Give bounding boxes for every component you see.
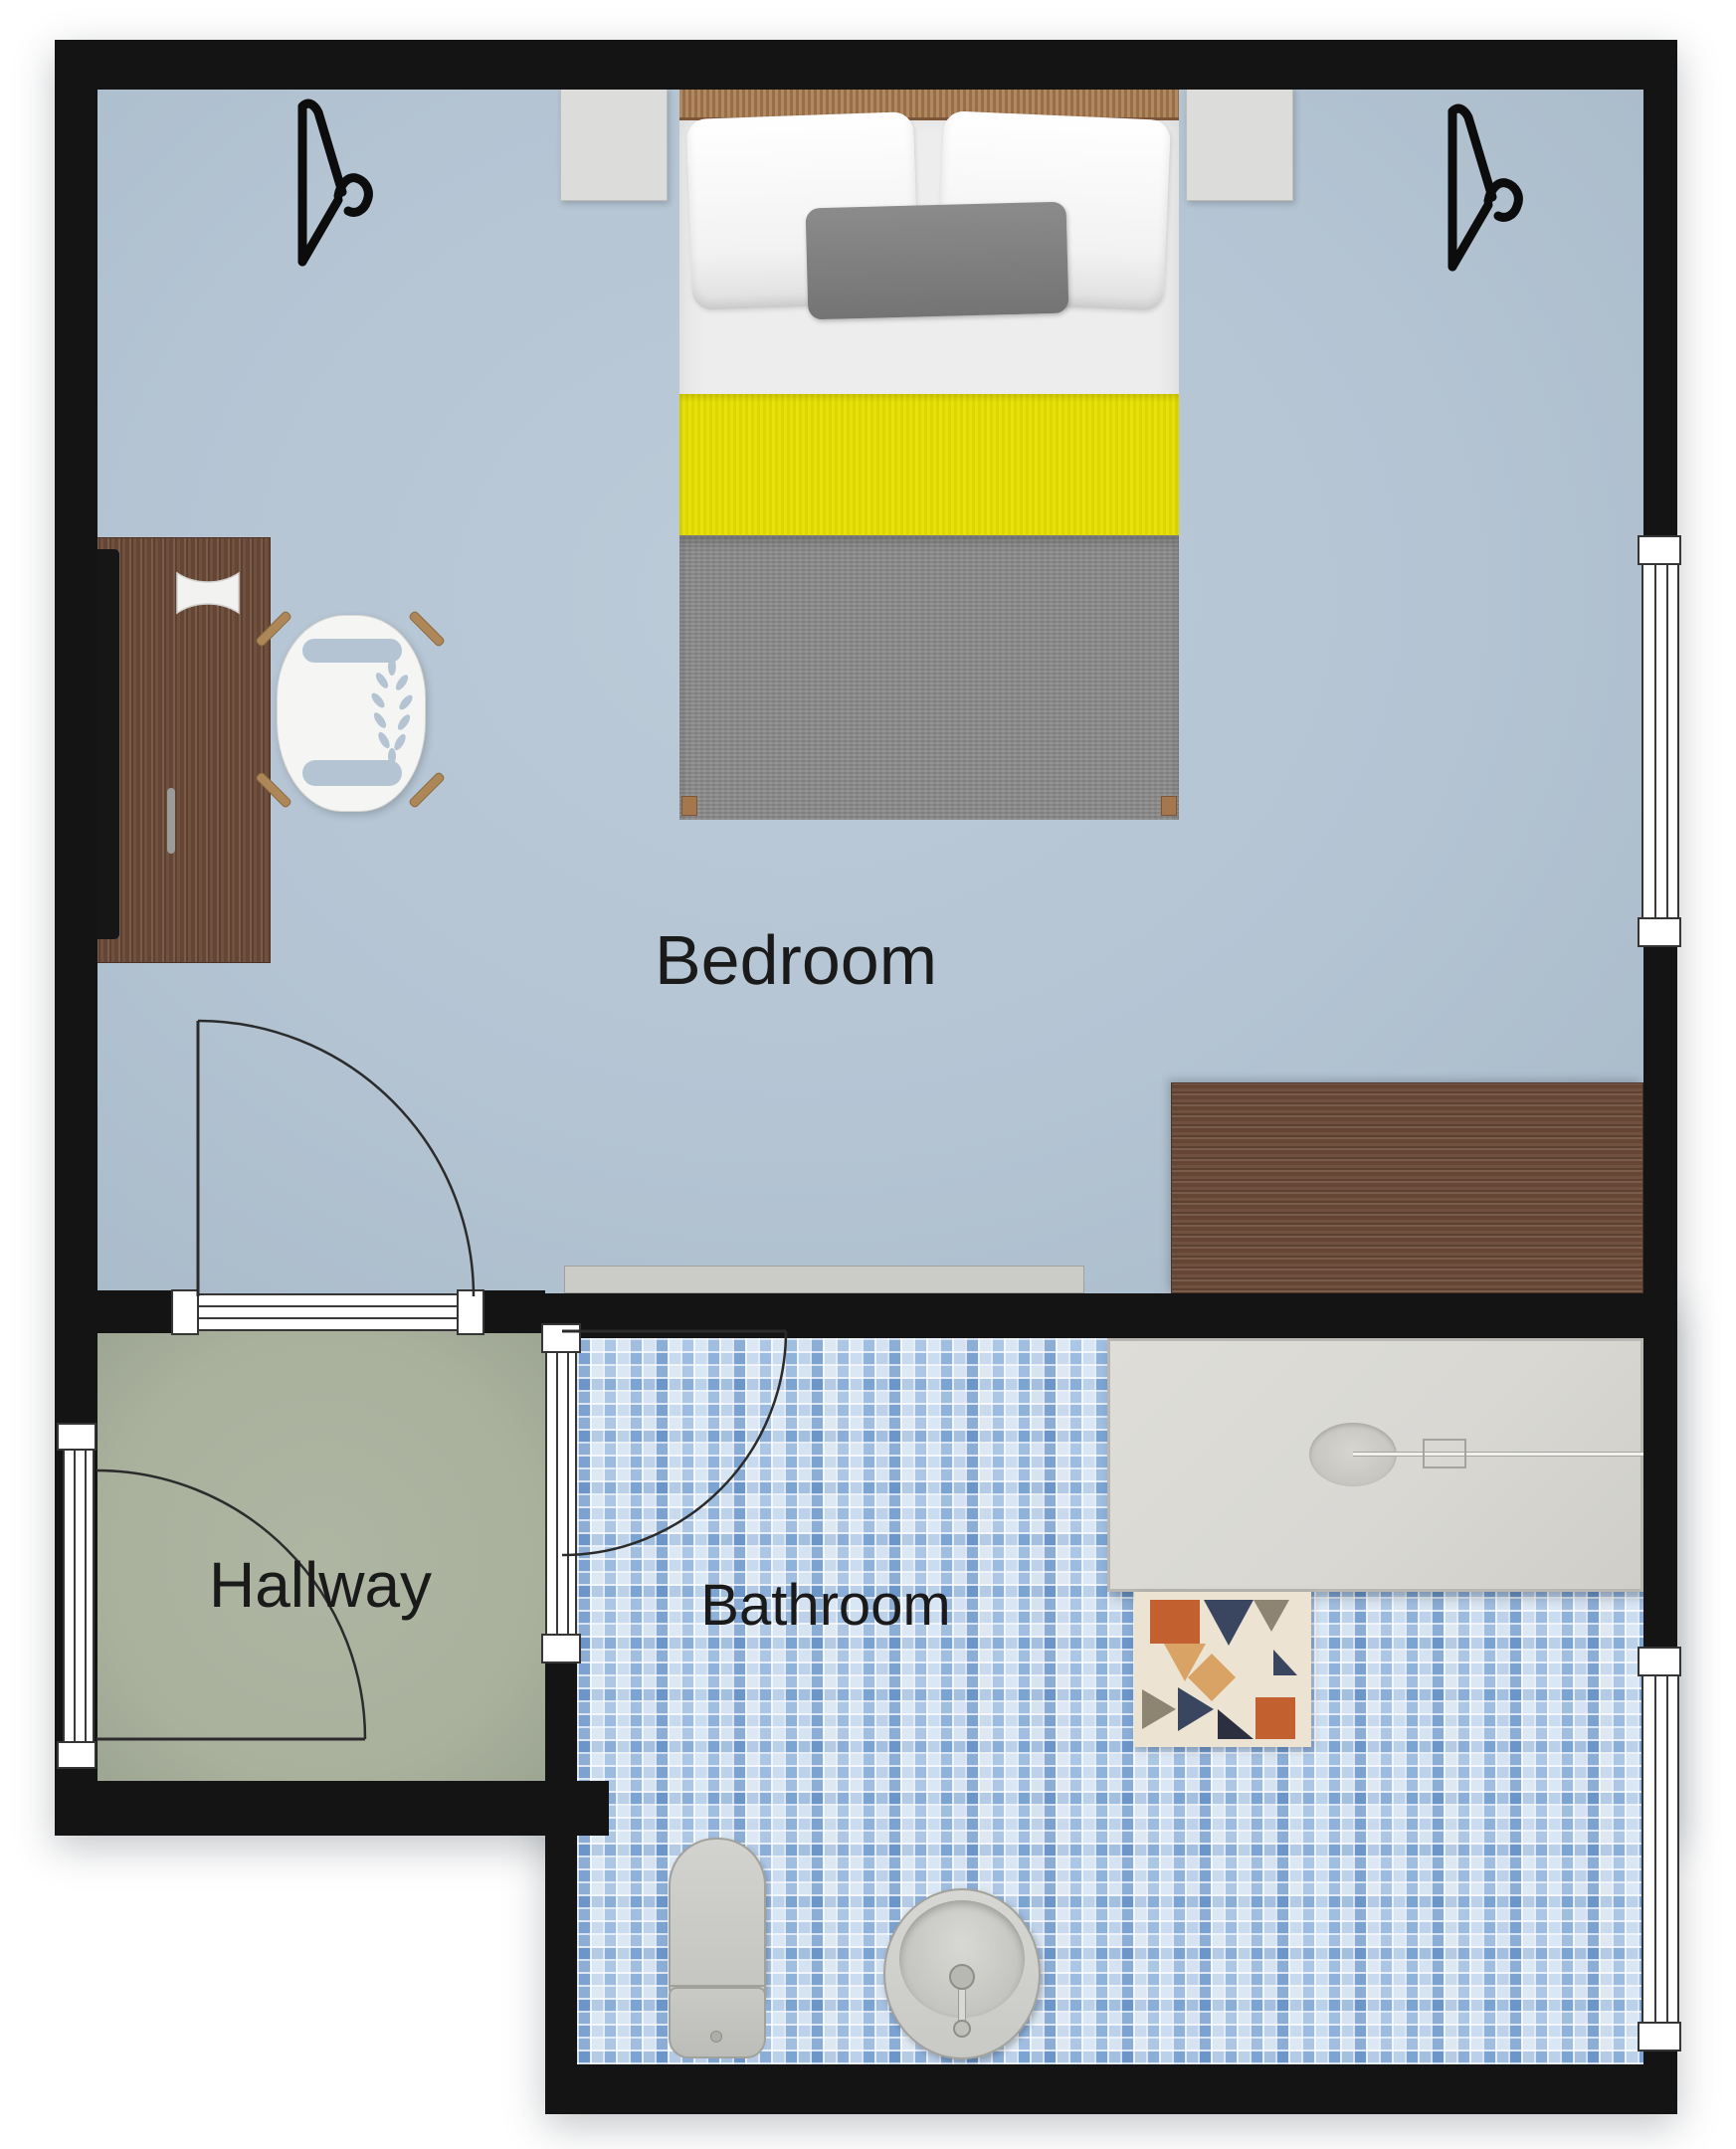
toilet[interactable] [665, 1836, 770, 2060]
window-bedroom-right[interactable] [1641, 540, 1679, 945]
window-hallway-left[interactable] [63, 1429, 95, 1767]
hanger-icon-right[interactable] [1441, 99, 1526, 279]
desk-drawer-handle [167, 788, 175, 854]
door-cap [541, 1634, 581, 1663]
room-label-bathroom: Bathroom [587, 1572, 1064, 1639]
bath-rug[interactable] [1134, 1592, 1311, 1747]
window-cap [57, 1741, 96, 1769]
faucet-knob [949, 1964, 975, 1990]
desk-paper [175, 571, 241, 615]
desk-chair[interactable] [261, 595, 440, 824]
hanger-icon-left[interactable] [290, 95, 376, 274]
bed-blanket [679, 535, 1179, 820]
door-cap [541, 1323, 581, 1353]
window-cap [57, 1423, 96, 1451]
bed-pillow-accent [806, 202, 1069, 320]
wall-bedroom-bathroom [545, 1293, 1677, 1338]
window-cap [1638, 1647, 1681, 1676]
bed-frame-foot-right [1161, 796, 1177, 816]
faucet-spout [953, 2020, 971, 2038]
window-cap [171, 1289, 199, 1335]
nightstand-right[interactable] [1186, 88, 1293, 201]
toilet-tank [669, 1987, 766, 2058]
window-bathroom-right[interactable] [1641, 1651, 1679, 2050]
wall-bathroom-bottom [545, 2064, 1677, 2114]
shower-control [1423, 1439, 1466, 1468]
room-label-hallway: Hallway [121, 1548, 519, 1622]
window-cap [1638, 2022, 1681, 2051]
chair-leg [255, 771, 292, 809]
window-cap [457, 1289, 484, 1335]
chair-leg [255, 610, 292, 648]
sink[interactable] [883, 1888, 1041, 2059]
window-bedroom-hallway[interactable] [174, 1293, 484, 1331]
radiator-strip[interactable] [564, 1266, 1084, 1293]
toilet-flush-button [710, 2031, 722, 2043]
nightstand-left[interactable] [560, 88, 668, 201]
door-frame-bathroom[interactable] [545, 1325, 577, 1661]
double-bed[interactable] [679, 84, 1179, 820]
room-label-bedroom: Bedroom [552, 920, 1040, 1000]
shower-arm [1353, 1452, 1643, 1457]
wall-top [55, 40, 1677, 90]
toilet-seam [671, 1985, 764, 1987]
chair-leaf-pattern [362, 657, 422, 766]
hanger-glyph [302, 103, 368, 262]
hanger-glyph [1452, 108, 1518, 267]
shower-tray[interactable] [1107, 1338, 1643, 1592]
window-cap [1638, 917, 1681, 947]
desk[interactable] [88, 535, 287, 965]
window-cap [1638, 535, 1681, 565]
wall-right-upper [1643, 40, 1677, 540]
wall-bedroom-hallway-right [484, 1290, 545, 1333]
bed-frame-foot-left [681, 796, 697, 816]
dresser[interactable] [1171, 1082, 1643, 1293]
wall-bathroom-left [545, 1660, 577, 2114]
wall-hallway-bottom [55, 1781, 609, 1836]
bed-sheet-yellow [679, 394, 1179, 535]
wall-bedroom-hallway-left [55, 1290, 174, 1333]
floor-plan: Bedroom Hallway Bathroom [0, 0, 1736, 2149]
toilet-bowl [669, 1838, 766, 2001]
